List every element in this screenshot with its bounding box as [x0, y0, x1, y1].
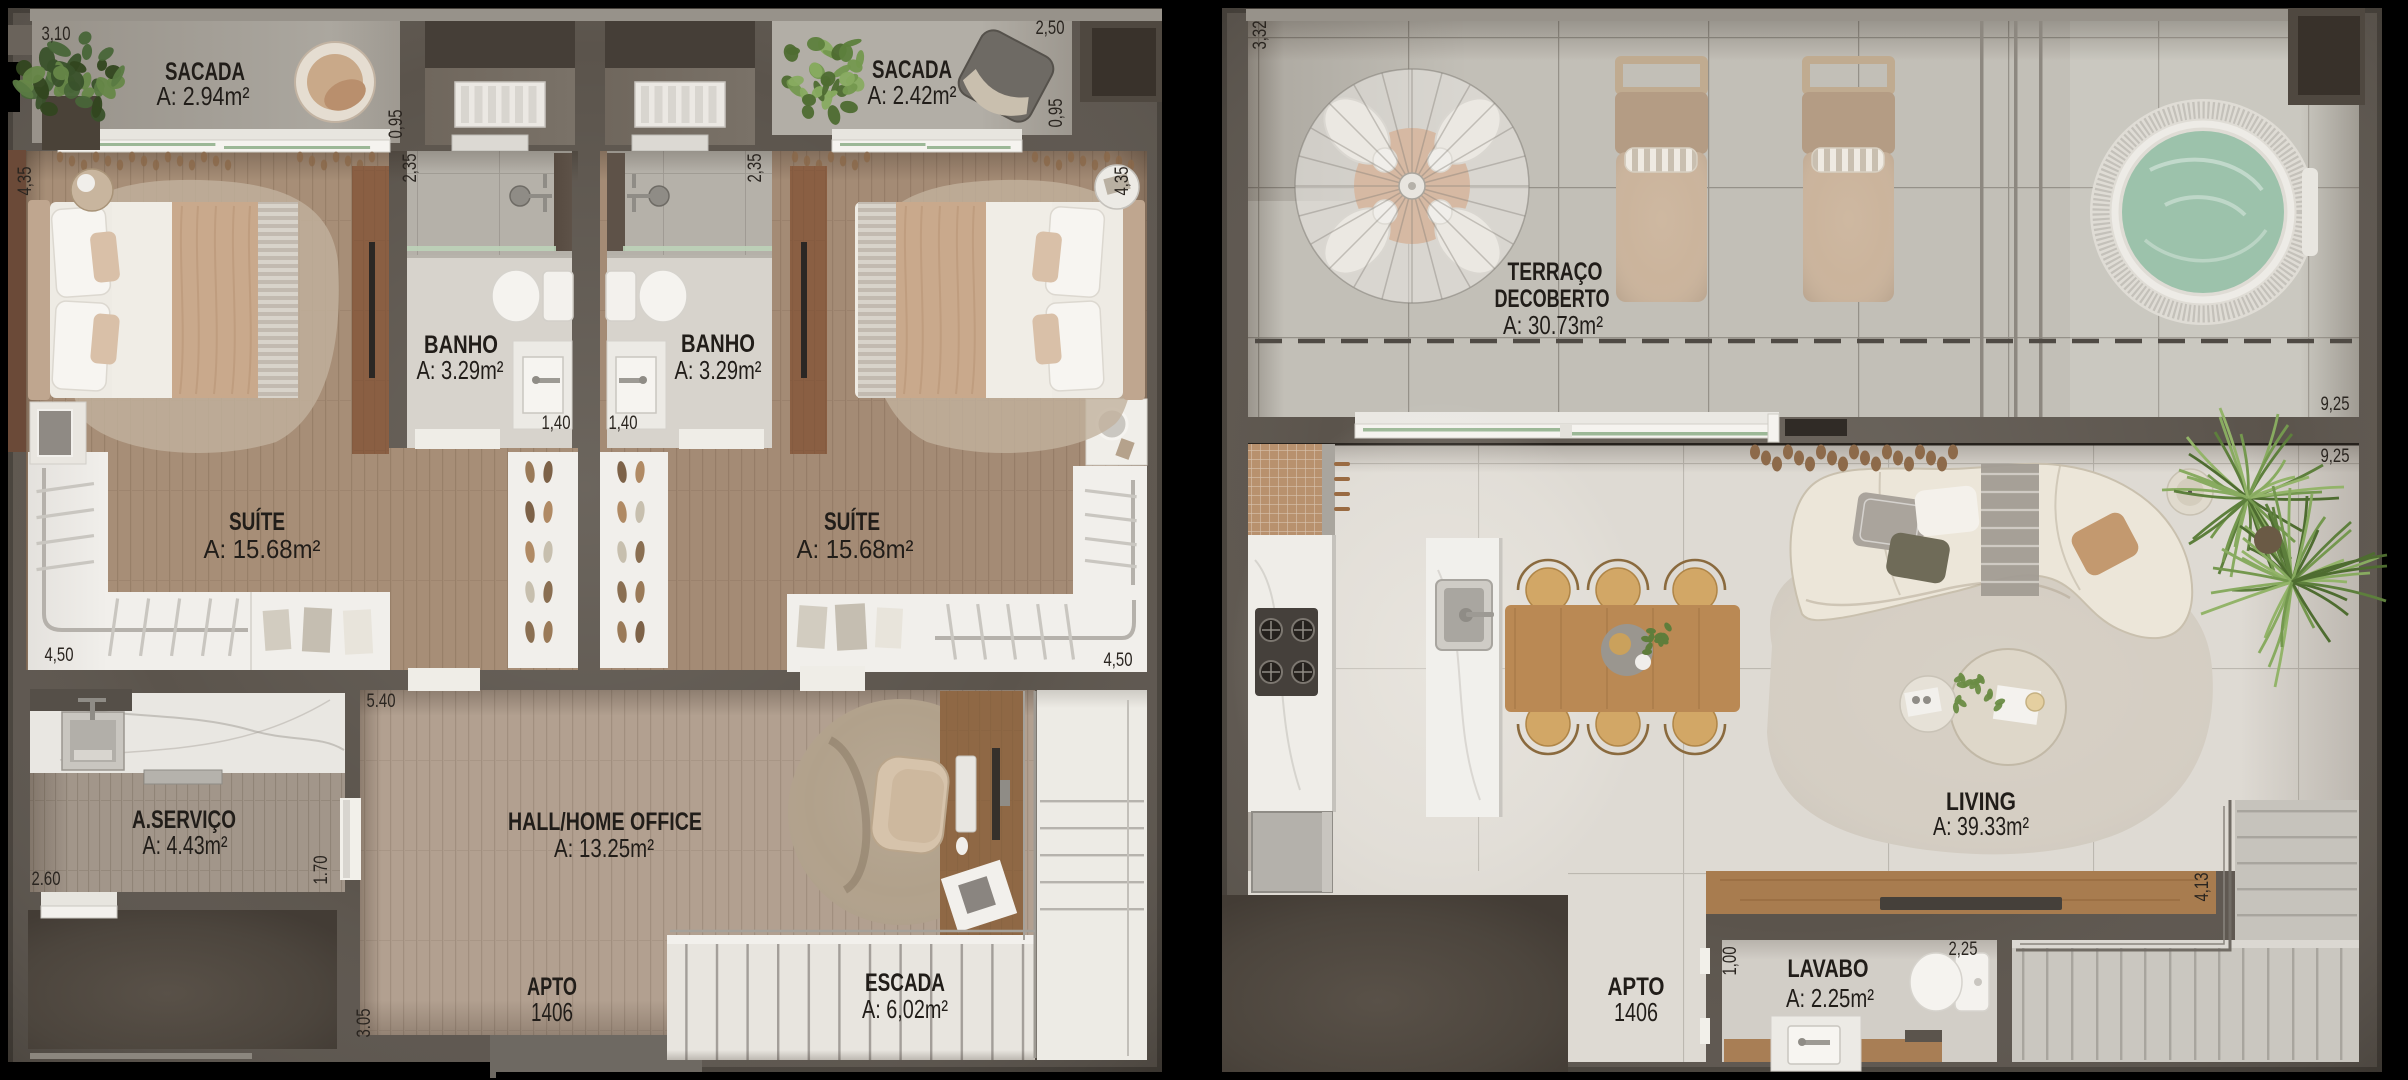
svg-text:BANHO: BANHO	[681, 330, 755, 358]
svg-text:1,00: 1,00	[1720, 947, 1741, 976]
svg-text:4,50: 4,50	[45, 645, 74, 666]
svg-text:2.60: 2.60	[32, 869, 61, 890]
svg-text:A: 3.29m²: A: 3.29m²	[417, 355, 504, 385]
svg-text:1406: 1406	[1614, 997, 1658, 1027]
svg-text:1.70: 1.70	[311, 856, 332, 885]
svg-text:3,10: 3,10	[42, 24, 71, 45]
svg-text:A: 2.42m²: A: 2.42m²	[868, 80, 957, 110]
svg-text:1,40: 1,40	[542, 413, 571, 434]
svg-text:5.40: 5.40	[367, 691, 396, 712]
svg-text:SUÍTE: SUÍTE	[824, 507, 880, 536]
svg-text:4,50: 4,50	[1104, 650, 1133, 671]
svg-text:TERRAÇO: TERRAÇO	[1508, 258, 1603, 286]
svg-text:A: 13.25m²: A: 13.25m²	[554, 833, 654, 863]
svg-text:DECOBERTO: DECOBERTO	[1495, 285, 1610, 313]
svg-text:3,32: 3,32	[1250, 21, 1271, 50]
svg-text:3.05: 3.05	[354, 1009, 375, 1038]
svg-text:4,13: 4,13	[2192, 873, 2213, 902]
svg-text:A: 2.25m²: A: 2.25m²	[1786, 983, 1874, 1013]
svg-text:HALL/HOME OFFICE: HALL/HOME OFFICE	[508, 808, 702, 836]
svg-text:2,35: 2,35	[400, 154, 421, 183]
svg-text:A: 2.94m²: A: 2.94m²	[157, 81, 250, 111]
svg-text:1406: 1406	[531, 997, 573, 1027]
svg-text:A: 6,02m²: A: 6,02m²	[862, 994, 948, 1024]
svg-text:9,25: 9,25	[2321, 394, 2350, 415]
svg-text:A: 4.43m²: A: 4.43m²	[143, 830, 228, 860]
svg-text:ESCADA: ESCADA	[865, 969, 945, 997]
svg-text:A: 30.73m²: A: 30.73m²	[1503, 310, 1603, 340]
svg-text:LAVABO: LAVABO	[1788, 955, 1869, 983]
svg-text:A: 39.33m²: A: 39.33m²	[1933, 811, 2029, 841]
svg-text:2,35: 2,35	[745, 154, 766, 183]
svg-text:2,50: 2,50	[1036, 18, 1065, 39]
svg-text:A: 15.68m²: A: 15.68m²	[204, 534, 321, 564]
svg-text:4,35: 4,35	[15, 167, 36, 196]
svg-text:1,40: 1,40	[609, 413, 638, 434]
svg-text:4,35: 4,35	[1112, 167, 1133, 196]
svg-text:A: 3.29m²: A: 3.29m²	[675, 355, 762, 385]
svg-text:SUÍTE: SUÍTE	[229, 507, 285, 536]
svg-text:9,25: 9,25	[2321, 446, 2350, 467]
svg-text:0,95: 0,95	[1046, 99, 1067, 128]
svg-text:2,25: 2,25	[1949, 939, 1978, 960]
svg-text:A: 15.68m²: A: 15.68m²	[797, 534, 914, 564]
svg-text:0,95: 0,95	[386, 110, 407, 139]
